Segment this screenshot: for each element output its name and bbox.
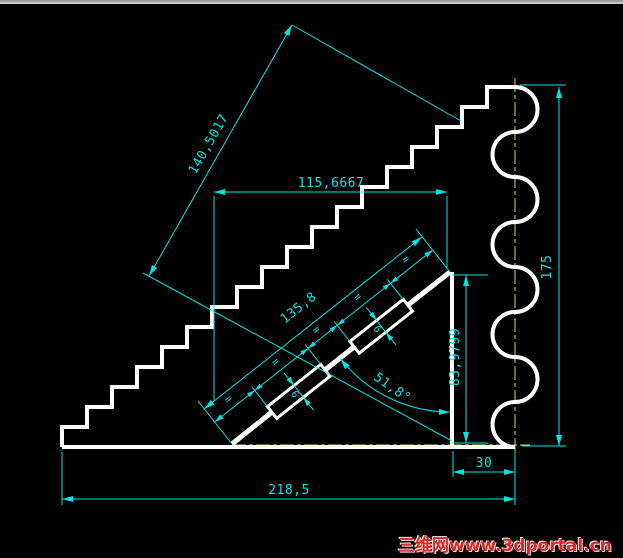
dim-right-offset-text: 30 [476, 456, 493, 471]
dim-incline-ext-lower [198, 401, 232, 444]
dim-incline-ext-upper [416, 229, 450, 272]
equal-mark-2: = [269, 355, 283, 370]
incline-bar-upper [408, 272, 450, 305]
dim-chain-ext-3 [334, 322, 350, 342]
dim-right-height-text: 175 [540, 255, 555, 280]
dim-aligned-ext-upper [292, 25, 461, 121]
watermark-text: 三维网www.3dportal.cn [398, 531, 618, 556]
incline-bar-lower [232, 412, 272, 444]
dim-top-width-text: 115,6667 [298, 176, 365, 191]
dim-incline-length-text: 135,8 [278, 289, 320, 327]
cad-window: 140,5017 115,6667 135,8 175 83,9799 51,8… [0, 0, 623, 558]
dim-base-width-text: 218,5 [268, 483, 310, 498]
incline-bar-middle [325, 347, 354, 370]
equal-mark-3: = [310, 322, 324, 337]
dimension-lines [62, 25, 566, 505]
equal-mark-5: = [399, 252, 413, 267]
dim-chain-ext-1 [252, 387, 268, 407]
equal-mark-4: = [351, 290, 365, 305]
dim-aligned-total-text: 140,5017 [186, 112, 232, 177]
dim-chain-ext-4 [387, 279, 403, 299]
dim-inner-height-text: 83,9799 [448, 328, 463, 386]
dim-chain-ext-2 [305, 344, 321, 364]
cad-drawing-canvas[interactable]: 140,5017 115,6667 135,8 175 83,9799 51,8… [0, 0, 623, 558]
equal-mark-1: = [222, 392, 236, 407]
dim-aligned-total-line [149, 25, 292, 276]
